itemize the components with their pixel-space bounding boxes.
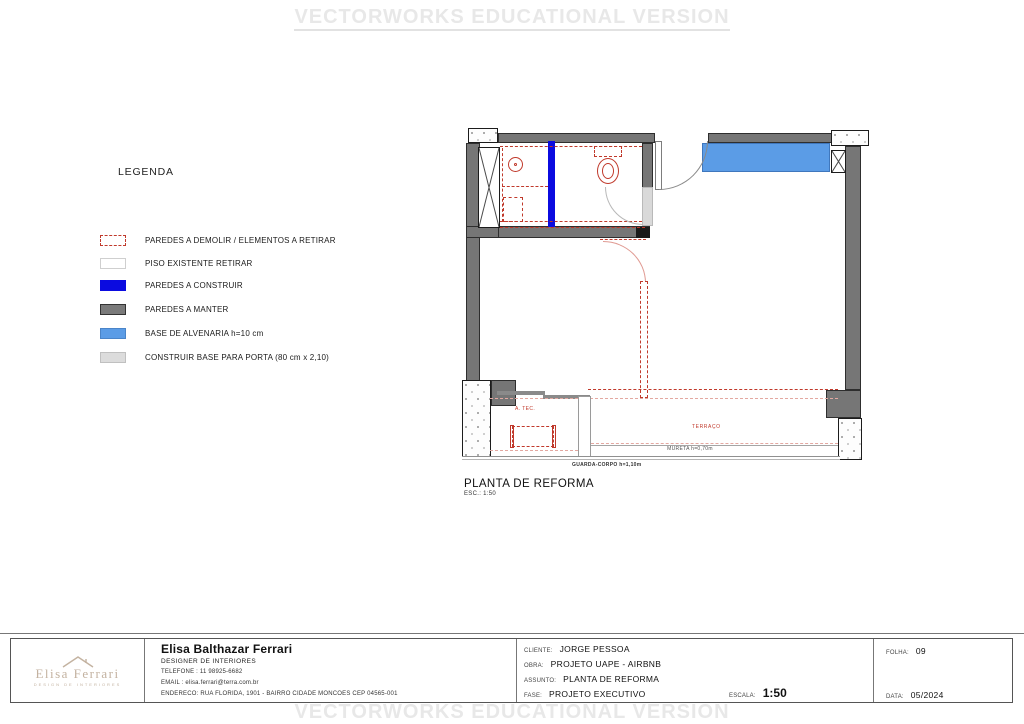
field-cliente: CLIENTE: JORGE PESSOA [524, 644, 630, 654]
legend-item-base-porta: CONSTRUIR BASE PARA PORTA (80 cm x 2,10) [100, 352, 329, 363]
swatch-manter [100, 304, 126, 315]
assunto-label: ASSUNTO: [524, 678, 556, 684]
swatch-construir [100, 280, 126, 291]
masonry-base-strip [702, 143, 830, 172]
shaft-x-left [478, 147, 500, 228]
divider-logo [144, 639, 145, 702]
field-obra: OBRA: PROJETO UAPE - AIRBNB [524, 659, 661, 669]
wall-bottom-endcap [636, 227, 650, 238]
drawing-sheet: VECTORWORKS EDUCATIONAL VERSION VECTORWO… [0, 0, 1024, 724]
demolish-line-bath-mid [502, 186, 548, 187]
sheet-border-line [0, 633, 1024, 634]
wall-top-right [708, 133, 832, 143]
designer-role: DESIGNER DE INTERIORES [161, 658, 256, 665]
vectorworks-watermark-bottom: VECTORWORKS EDUCATIONAL VERSION [0, 701, 1024, 724]
shaft-x-right [831, 150, 846, 173]
logo-name: Elisa Ferrari [35, 668, 119, 680]
field-folha: FOLHA: 09 [886, 646, 926, 656]
legend-item-construir: PAREDES A CONSTRUIR [100, 280, 243, 291]
floor-plan: A. TEC. TERRAÇO MURETA h=0,70m GUARDA-CO… [460, 118, 872, 470]
toilet-tank [594, 146, 622, 157]
entry-door-swing-arc [659, 141, 708, 190]
obra-label: OBRA: [524, 663, 544, 669]
toilet-bowl [597, 158, 619, 184]
swatch-piso [100, 258, 126, 269]
x-brace-icon [832, 151, 845, 172]
legend-item-piso: PISO EXISTENTE RETIRAR [100, 258, 253, 269]
data-label: DATA: [886, 694, 904, 700]
fase-label: FASE: [524, 693, 542, 699]
demolish-line-terrace-lower [490, 398, 838, 399]
company-logo: Elisa Ferrari DESIGN DE INTERIORES [11, 639, 144, 702]
equipment-box [512, 426, 554, 447]
field-escala: ESCALA: 1:50 [729, 686, 787, 700]
terrace-mullion [578, 396, 591, 458]
title-block: Elisa Ferrari DESIGN DE INTERIORES Elisa… [10, 638, 1013, 703]
divider-fields [873, 639, 874, 702]
designer-email: EMAIL : elisa.ferrari@terra.com.br [161, 680, 259, 686]
escala-label: ESCALA: [729, 693, 756, 699]
wall-right-bottom-block [826, 390, 861, 418]
window-track-1 [497, 391, 545, 395]
column-top-right [831, 130, 869, 146]
column-bottom-right [838, 418, 862, 460]
bathroom-door-swing-arc [605, 187, 643, 225]
plan-scale-note: ESC.: 1:50 [464, 491, 496, 497]
demolish-line-on-wall [500, 227, 645, 228]
field-assunto: ASSUNTO: PLANTA DE REFORMA [524, 674, 659, 684]
folha-label: FOLHA: [886, 650, 909, 656]
escala-value: 1:50 [763, 686, 787, 700]
toilet-bowl-inner [602, 163, 614, 179]
equipment-end-right [552, 425, 556, 448]
divider-company [516, 639, 517, 702]
demolished-door-arc [603, 241, 646, 283]
swatch-alvenaria [100, 328, 126, 339]
atec-dash-line [490, 450, 578, 451]
field-data: DATA: 05/2024 [886, 690, 944, 700]
area-tecnica-label: A. TEC. [515, 406, 535, 412]
mureta-label: MURETA h=0,70m [630, 446, 750, 452]
demolish-wall-vertical [640, 281, 648, 398]
plan-title: PLANTA DE REFORMA [464, 478, 594, 490]
wall-right [845, 146, 861, 390]
assunto-value: PLANTA DE REFORMA [563, 674, 659, 684]
terraco-label: TERRAÇO [692, 424, 721, 430]
field-fase: FASE: PROJETO EXECUTIVO [524, 689, 646, 699]
new-wall-blue [548, 141, 555, 227]
designer-name: Elisa Balthazar Ferrari [161, 642, 292, 656]
drain-center [514, 163, 517, 166]
legend-item-demolir: PAREDES A DEMOLIR / ELEMENTOS A RETIRAR [100, 235, 336, 246]
designer-address: ENDERECO: RUA FLORIDA, 1901 - BAIRRO CID… [161, 691, 398, 697]
guardrail-line [462, 456, 840, 460]
drain-circle [508, 157, 523, 172]
guarda-corpo-label: GUARDA-CORPO h=1,10m [572, 462, 641, 468]
fase-value: PROJETO EXECUTIVO [549, 689, 646, 699]
cliente-label: CLIENTE: [524, 648, 553, 654]
swatch-base-porta [100, 352, 126, 363]
wall-top-bathroom [498, 133, 655, 143]
cliente-value: JORGE PESSOA [560, 644, 630, 654]
swatch-demolir [100, 235, 126, 246]
equipment-end-left [510, 425, 514, 448]
mureta-dash [591, 443, 838, 444]
folha-value: 09 [916, 646, 926, 656]
sink-cabinet [503, 197, 523, 222]
data-value: 05/2024 [911, 690, 944, 700]
column-top-left [468, 128, 498, 143]
logo-subtitle: DESIGN DE INTERIORES [34, 682, 122, 687]
legend-title: LEGENDA [118, 166, 174, 178]
obra-value: PROJETO UAPE - AIRBNB [551, 659, 662, 669]
demolish-line-door [600, 239, 646, 240]
legend-item-alvenaria: BASE DE ALVENARIA h=10 cm [100, 328, 263, 339]
legend-item-manter: PAREDES A MANTER [100, 304, 229, 315]
wall-bathroom-right-top [642, 143, 653, 188]
demolish-line-terrace-upper [588, 389, 838, 390]
column-bottom-left [462, 380, 491, 460]
designer-phone: TELEFONE : 11 98925-6682 [161, 669, 242, 675]
vectorworks-watermark-top: VECTORWORKS EDUCATIONAL VERSION [0, 6, 1024, 29]
door-base-strip [642, 187, 653, 226]
x-brace-icon [479, 148, 499, 227]
